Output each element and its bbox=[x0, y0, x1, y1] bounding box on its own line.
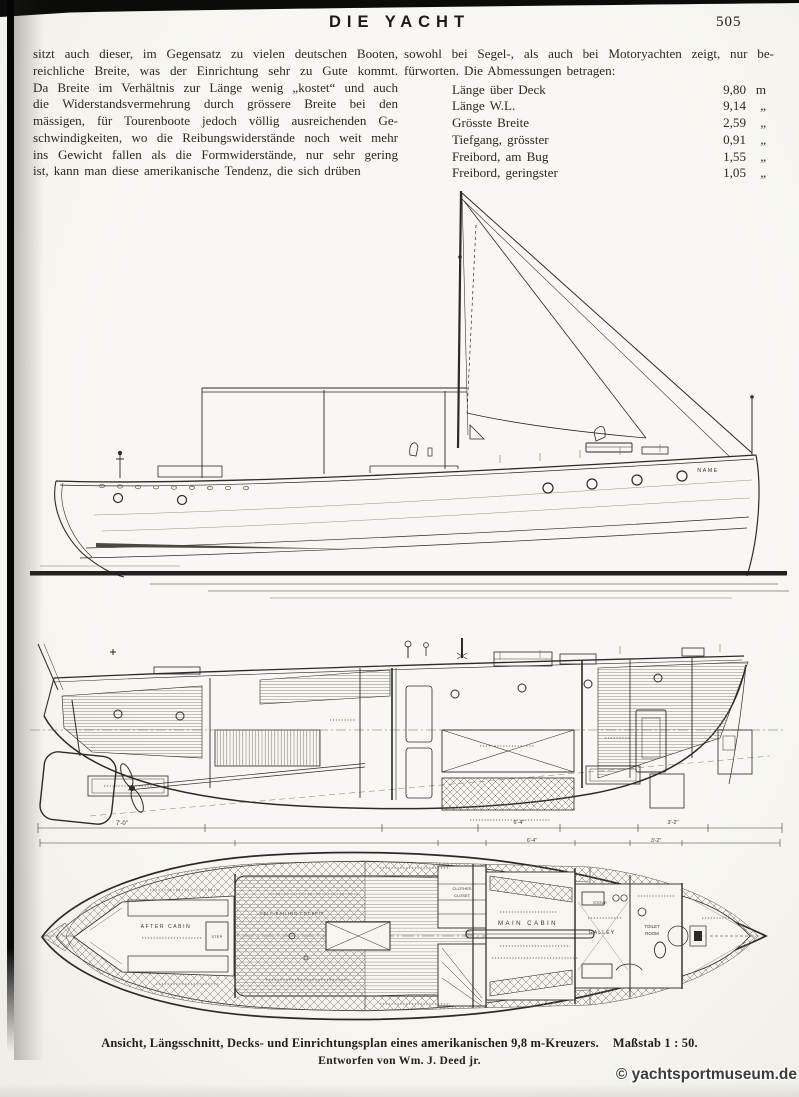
text-line: fürworten. Die Abmessungen betragen: bbox=[404, 63, 774, 80]
dimension-row: Freibord, geringster 1,05 „ bbox=[452, 165, 766, 182]
article-left-column: sitzt auch dieser, im Gegensatz zu viele… bbox=[33, 46, 398, 180]
dimension-label: Tiefgang, grösster bbox=[452, 132, 704, 149]
magazine-page: DIE YACHT 505 sitzt auch dieser, im Gege… bbox=[0, 0, 799, 1097]
dimension-unit: „ bbox=[746, 132, 766, 149]
hull-name-label: NAME bbox=[697, 468, 719, 474]
galley-label: GALLEY bbox=[589, 930, 616, 936]
dimension-label: 3'-2'' bbox=[651, 838, 661, 844]
toilet-room-label-2: ROOM bbox=[645, 931, 659, 936]
text-line: ist, kann man diese amerikanische Tenden… bbox=[33, 163, 398, 180]
elevation-mast-rigging bbox=[458, 191, 754, 457]
elevation-portholes bbox=[114, 471, 688, 505]
deck-plan-drawing: 6'-4'' 3'-2'' bbox=[30, 838, 790, 1035]
caption-text: Ansicht, Längsschnitt, Decks- und Einric… bbox=[101, 1036, 599, 1050]
dimension-value: 9,80 bbox=[704, 82, 746, 99]
dimension-label: 7'-0'' bbox=[116, 821, 128, 827]
dimension-label: Grösste Breite bbox=[452, 115, 704, 132]
dimension-label: Freibord, geringster bbox=[452, 165, 704, 182]
watermark: © yachtsportmuseum.de bbox=[616, 1066, 797, 1084]
page-number: 505 bbox=[716, 14, 742, 31]
dimension-unit: „ bbox=[746, 115, 766, 132]
text-line: reichliche Breite, was der Einrichtung s… bbox=[33, 63, 398, 80]
dimension-value: 1,55 bbox=[704, 149, 746, 166]
dimension-unit: „ bbox=[746, 98, 766, 115]
toilet-room-label-1: TOILET bbox=[644, 924, 660, 929]
dimension-value: 2,59 bbox=[704, 115, 746, 132]
dimension-value: 0,91 bbox=[704, 132, 746, 149]
text-line: Da Breite im Verhältnis zur Länge wenig … bbox=[33, 80, 398, 97]
text-line: die Widerstandsvermehrung durch grössere… bbox=[33, 96, 398, 113]
elevation-waterline bbox=[30, 566, 789, 598]
dimension-unit: „ bbox=[746, 165, 766, 182]
dimension-label: Länge W.L. bbox=[452, 98, 704, 115]
dimension-unit: m bbox=[746, 82, 766, 99]
cockpit-label: SELF-BAILING COCKPIT bbox=[260, 911, 324, 916]
elevation-hull bbox=[55, 455, 759, 577]
caption-scale: Maßstab 1 : 50. bbox=[613, 1036, 698, 1050]
section-propeller bbox=[118, 762, 365, 814]
main-cabin-label: MAIN CABIN bbox=[498, 920, 558, 927]
dimension-label: 6'-4'' bbox=[527, 838, 537, 844]
elevation-bulwark-slots bbox=[99, 484, 248, 489]
caption-line-1: Ansicht, Längsschnitt, Decks- und Einric… bbox=[0, 1036, 799, 1051]
dimension-row: Länge W.L. 9,14 „ bbox=[452, 98, 766, 115]
stove-label: STOVE bbox=[593, 900, 607, 905]
dimensions-table: Länge über Deck 9,80 m Länge W.L. 9,14 „… bbox=[452, 82, 766, 183]
dimension-label: 6'-4'' bbox=[513, 820, 524, 826]
dimension-row: Tiefgang, grösster 0,91 „ bbox=[452, 132, 766, 149]
section-planking-hatch bbox=[62, 662, 748, 778]
elevation-drawing: NAME bbox=[30, 185, 790, 603]
longitudinal-section-drawing: 7'-0'' 6'-4'' 3'-2'' bbox=[30, 638, 790, 838]
dimension-row: Grösste Breite 2,59 „ bbox=[452, 115, 766, 132]
closet-label-1: CLOTHES bbox=[453, 886, 472, 891]
text-line: schwindigkeiten, wo die Reibungswiderstä… bbox=[33, 130, 398, 147]
dimension-row: Länge über Deck 9,80 m bbox=[452, 82, 766, 99]
scan-edge-left bbox=[7, 0, 14, 1052]
plan-dimension-line bbox=[40, 839, 780, 847]
scan-shadow-bottom bbox=[0, 1083, 799, 1097]
dimension-row: Freibord, am Bug 1,55 „ bbox=[452, 149, 766, 166]
page-title: DIE YACHT bbox=[0, 13, 799, 32]
step-label: STEP bbox=[212, 935, 223, 939]
dimension-value: 1,05 bbox=[704, 165, 746, 182]
text-line: mässigen, für Tourenboote jedoch völlig … bbox=[33, 113, 398, 130]
after-cabin-label: AFTER CABIN bbox=[141, 924, 192, 930]
text-line: ins Gewicht fallen als die Formwiderstän… bbox=[33, 147, 398, 164]
text-line: sowohl bei Segel-, als auch bei Motoryac… bbox=[404, 46, 774, 63]
dimension-value: 9,14 bbox=[704, 98, 746, 115]
dimension-unit: „ bbox=[746, 149, 766, 166]
dimension-label: Länge über Deck bbox=[452, 82, 704, 99]
closet-label-2: CLOSET bbox=[454, 893, 471, 898]
text-line: sitzt auch dieser, im Gegensatz zu viele… bbox=[33, 46, 398, 63]
dimension-label: 3'-2'' bbox=[667, 820, 678, 826]
article-right-column: sowohl bei Segel-, als auch bei Motoryac… bbox=[404, 46, 774, 182]
dimension-label: Freibord, am Bug bbox=[452, 149, 704, 166]
figure-caption: Ansicht, Längsschnitt, Decks- und Einric… bbox=[0, 1036, 799, 1067]
